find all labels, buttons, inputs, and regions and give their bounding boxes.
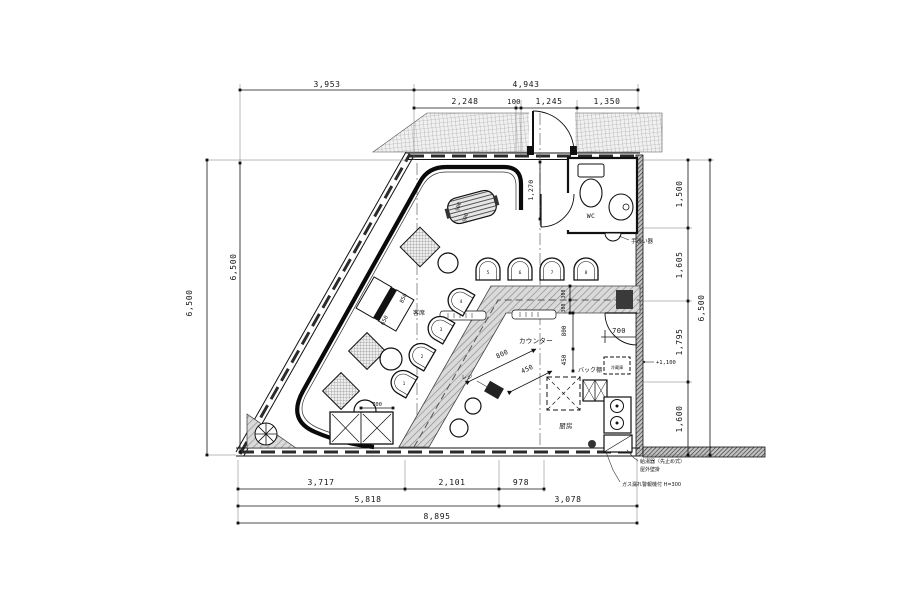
kitchen-work-table <box>604 435 632 452</box>
dim-right-4: 1,600 <box>675 405 684 432</box>
planting-area <box>247 414 296 448</box>
counter-label: カウンター <box>519 336 553 345</box>
level-note: +1,100 <box>643 360 676 366</box>
entrance-gap <box>529 111 575 154</box>
dim-top-1: 3,953 <box>313 80 340 89</box>
dim-entry-depth: 1,270 <box>527 179 535 200</box>
dim-bottom-4: 5,818 <box>354 495 381 504</box>
dim-right-1: 1,500 <box>675 180 684 207</box>
stool-2 <box>450 419 468 437</box>
dim-bottom-1: 3,717 <box>307 478 334 487</box>
hand-wash-label: 手洗い器 <box>631 237 654 245</box>
dim-right-3: 1,795 <box>675 328 684 355</box>
wc-sink <box>609 194 633 220</box>
dim-left-inner: 6,500 <box>229 253 238 280</box>
dim-unit-700: 700 <box>372 402 382 408</box>
kitchen-label: 厨房 <box>559 421 573 430</box>
table-hatched-3 <box>323 373 360 410</box>
storage-unit <box>330 412 393 444</box>
existing-exterior-wall <box>643 447 765 457</box>
seat-number: 4 <box>460 299 463 305</box>
dim-counter-300b: 300 <box>561 303 567 312</box>
fridge-label: 冷蔵庫 <box>611 364 624 371</box>
wc-door-opening <box>565 193 571 230</box>
dim-bottom-total: 8,895 <box>423 512 450 521</box>
tree-symbol <box>255 423 277 445</box>
dim-right-total: 6,500 <box>697 294 706 321</box>
dim-bottom-5: 3,078 <box>554 495 581 504</box>
dim-top-5: 1,245 <box>535 97 562 106</box>
counter-front-shelf-b <box>512 310 556 319</box>
dim-left-outer: 6,500 <box>185 289 194 316</box>
seating-label: 客席 <box>413 309 425 317</box>
dim-top-4: 100 <box>507 98 521 106</box>
hand-wash-leader <box>619 236 629 240</box>
register-box <box>484 381 504 399</box>
stool-1 <box>465 398 481 414</box>
seat-number: 3 <box>440 327 443 333</box>
table-hatched-2 <box>349 333 386 370</box>
dim-counter-450: 450 <box>561 354 568 365</box>
dim-counter-800: 800 <box>561 325 568 336</box>
wc-label: WC <box>587 212 595 220</box>
counter-seat-7 <box>540 258 564 280</box>
counter-seat-5 <box>476 258 500 280</box>
dim-top-3: 2,248 <box>451 97 478 106</box>
counter-sink-unit <box>616 290 633 309</box>
seat-number: 7 <box>551 270 554 276</box>
register-label: レジ <box>461 375 473 381</box>
gas-alarm-note-text: ガス漏れ警報機付 H=300 <box>622 481 681 488</box>
heater-note-line2: 屋外壁掛 <box>640 466 660 473</box>
heater-note-line1: 給湯器（先止め式） <box>640 458 685 465</box>
register-leader <box>477 381 489 388</box>
kitchen-stove <box>604 397 631 433</box>
dim-bottom-2: 2,101 <box>438 478 465 487</box>
round-chair-1 <box>438 253 458 273</box>
level-note-text: +1,100 <box>656 360 676 366</box>
sidewalk-tile-band <box>373 111 662 154</box>
seat-number: 5 <box>487 270 490 276</box>
seat-number: 2 <box>421 354 424 360</box>
floor-drain <box>588 440 596 448</box>
dim-bottom-3: 978 <box>513 478 529 487</box>
hand-wash-basin <box>605 233 621 241</box>
seat-number: 8 <box>585 270 588 276</box>
floor-plan-svg: 1 2 3 4 5 6 7 8 <box>0 0 900 600</box>
counter-seat-8 <box>574 258 598 280</box>
seat-number: 1 <box>403 381 406 387</box>
dim-shelf-700: 700 <box>612 327 626 335</box>
table-hatched-1 <box>400 227 440 267</box>
back-shelf-area: 冷蔵庫 バック棚 <box>578 313 637 374</box>
dim-top-2: 4,943 <box>512 80 539 89</box>
round-chair-2 <box>380 348 402 370</box>
dim-aisle-800: 800 <box>495 348 510 361</box>
table-striped <box>443 187 502 226</box>
toilet <box>578 164 604 207</box>
back-shelf-label: バック棚 <box>578 366 602 374</box>
wc-room: WC 手洗い器 <box>541 158 654 245</box>
kitchen-hood <box>547 377 580 410</box>
dim-right-2: 1,605 <box>675 251 684 278</box>
counter-seat-6 <box>508 258 532 280</box>
dim-counter-300a: 300 <box>561 289 567 298</box>
dim-aisle-450: 450 <box>520 363 535 376</box>
kitchen: 厨房 <box>547 377 632 452</box>
seat-number: 6 <box>519 270 522 276</box>
dim-top-6: 1,350 <box>593 97 620 106</box>
floor-plan-canvas: 1 2 3 4 5 6 7 8 <box>0 0 900 600</box>
